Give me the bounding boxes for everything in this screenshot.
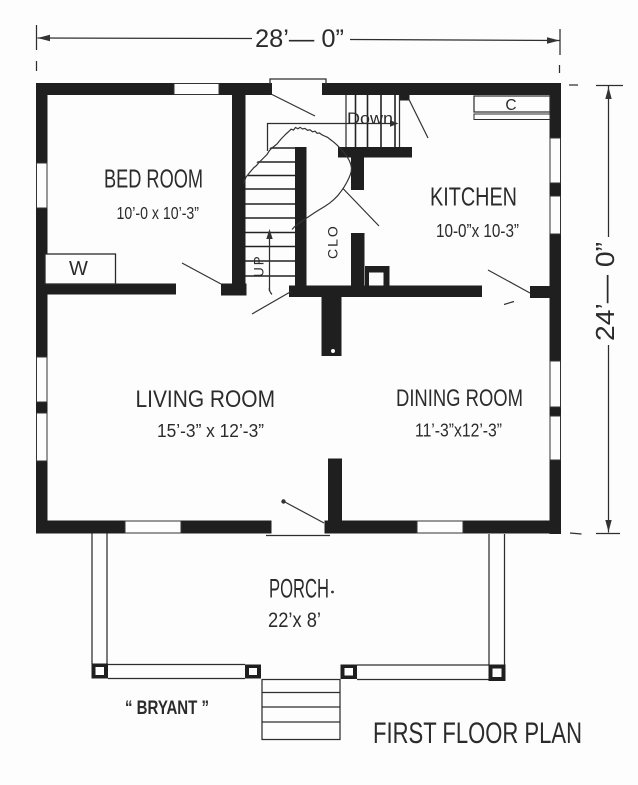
svg-text:15’-3” x 12’-3”: 15’-3” x 12’-3” bbox=[157, 421, 264, 441]
svg-text:W: W bbox=[69, 258, 88, 280]
svg-text:PORCH: PORCH bbox=[269, 574, 329, 604]
svg-text:FIRST FLOOR PLAN: FIRST FLOOR PLAN bbox=[373, 717, 582, 750]
svg-text:10-0”x 10-3”: 10-0”x 10-3” bbox=[436, 220, 519, 241]
svg-text:KITCHEN: KITCHEN bbox=[430, 182, 517, 212]
svg-text:28’— 0”: 28’— 0” bbox=[255, 25, 344, 53]
svg-text:Down: Down bbox=[347, 110, 393, 128]
svg-text:CLO: CLO bbox=[325, 224, 341, 259]
svg-text:DINING ROOM: DINING ROOM bbox=[396, 385, 523, 412]
svg-text:11’-3”x12’-3”: 11’-3”x12’-3” bbox=[415, 421, 502, 441]
svg-text:“ BRYANT ”: “ BRYANT ” bbox=[125, 697, 209, 719]
svg-text:LIVING ROOM: LIVING ROOM bbox=[136, 386, 276, 413]
svg-text:UP: UP bbox=[252, 254, 267, 277]
svg-text:24’— 0”: 24’— 0” bbox=[590, 242, 620, 341]
svg-text:C: C bbox=[505, 97, 516, 114]
svg-text:10’-0 x 10’-3”: 10’-0 x 10’-3” bbox=[117, 203, 200, 223]
svg-text:BED ROOM: BED ROOM bbox=[104, 164, 203, 194]
svg-text:22’x 8’: 22’x 8’ bbox=[268, 608, 321, 632]
